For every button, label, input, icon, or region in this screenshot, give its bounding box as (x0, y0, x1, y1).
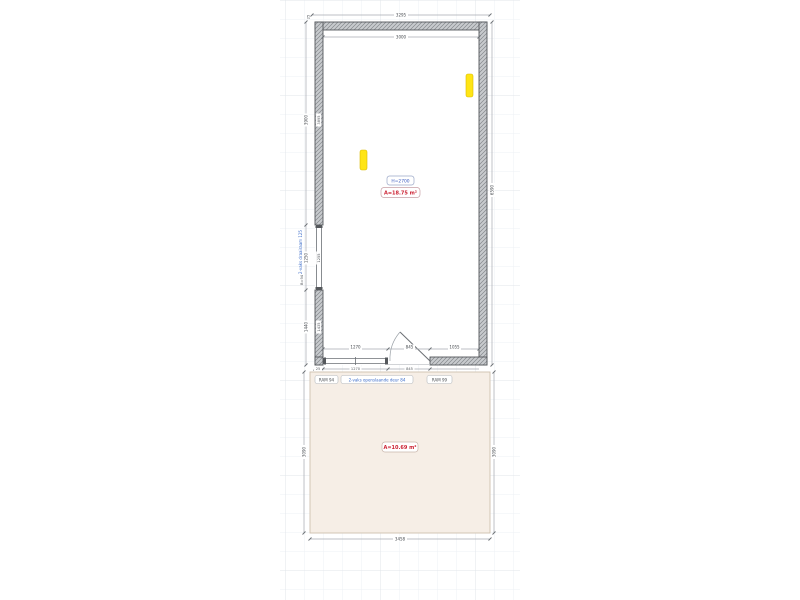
window-left-code: B=94 (300, 274, 304, 285)
window-left-label[interactable]: 2-vaks draairaam 125 (298, 230, 303, 274)
dim-below-left: 25 (316, 367, 321, 371)
dim-left-window-value: 1250 (304, 252, 309, 263)
wall-top[interactable] (315, 22, 487, 30)
room-height-label: H=2700 (391, 178, 409, 184)
dim-bottom-window: 1270 (350, 345, 361, 350)
component-labels: RAM 94 2-vaks openslaande deur 84 RAM 99 (315, 376, 452, 384)
wall-right[interactable] (479, 22, 487, 365)
room-area-label: A=18.75 m² (384, 191, 417, 197)
svg-text:B=94: B=94 (300, 274, 304, 285)
window-bottom[interactable] (323, 357, 388, 365)
dim-bottom-door: 845 (406, 345, 414, 350)
dim-top-outer-value: 3295 (396, 13, 407, 18)
dim-bottom-wallseg: 1055 (449, 345, 460, 350)
dim-wall-thickness: 25 (306, 15, 310, 20)
window-left-jamb-bottom (316, 287, 323, 290)
dim-left-window-inner: 1255 (317, 253, 321, 262)
comp-label-1: RAM 94 (319, 377, 335, 382)
floorplan-canvas: 3295 25 3000 6590 3900 1250 (0, 0, 800, 600)
terrace-area-label: A=10.69 m² (383, 445, 416, 451)
window-left-jamb-top (316, 225, 323, 228)
dim-terrace-height-right: 3090 (492, 446, 497, 457)
comp-label-2: 2-vaks openslaande deur 84 (349, 377, 406, 382)
terrace-label[interactable]: A=10.69 m² (382, 442, 418, 452)
dim-right-outer-value: 6590 (490, 184, 495, 195)
comp-label-3: RAM 99 (432, 377, 448, 382)
terrace-area[interactable] (310, 372, 490, 533)
window-bottom-jamb-right (385, 358, 388, 365)
wall-bottom-right[interactable] (430, 357, 487, 365)
dim-terrace-height-left: 3090 (302, 446, 307, 457)
fixture-yellow-mid[interactable] (360, 150, 367, 170)
svg-text:25: 25 (306, 15, 310, 20)
dim-terrace-width: 3458 (395, 537, 406, 542)
dim-left-lower-value: 1440 (304, 321, 309, 332)
dim-below-door: 845 (406, 367, 413, 371)
dim-left-upper-value: 3900 (304, 114, 309, 125)
dim-top-inner-value: 3000 (396, 35, 407, 40)
dim-below-window: 1270 (351, 367, 361, 371)
window-bottom-jamb-left (323, 358, 326, 365)
floorplan-drawing: 3295 25 3000 6590 3900 1250 (0, 0, 800, 600)
svg-text:2-vaks draairaam 125: 2-vaks draairaam 125 (298, 230, 303, 274)
dim-left-lower-inner: 1435 (317, 322, 321, 331)
fixture-yellow-right[interactable] (466, 74, 473, 97)
dim-left-upper-inner: 3895 (317, 115, 321, 124)
wall-bottom-left-stub[interactable] (315, 357, 323, 365)
